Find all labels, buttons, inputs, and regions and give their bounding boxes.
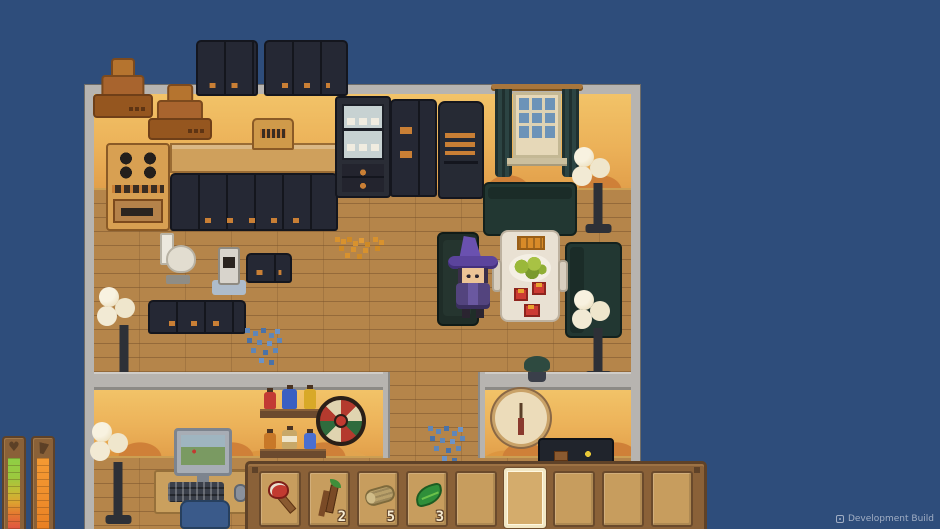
- counter-radio[interactable]: [252, 118, 294, 150]
- log-icon: [363, 483, 397, 508]
- hotbar-slot[interactable]: [259, 471, 301, 527]
- hotbar-slots: 2 5 3: [259, 471, 693, 529]
- wall-top-band: [94, 372, 390, 390]
- potion-orange: [264, 433, 276, 449]
- energy-track: [37, 458, 49, 529]
- dev-build-label: Development Build: [848, 514, 934, 524]
- potion-blue: [282, 389, 297, 409]
- hutch-base: [93, 94, 153, 118]
- coffee-body: [218, 247, 240, 285]
- stove-panel: [112, 185, 164, 193]
- floor-scribble-orange: [335, 237, 340, 242]
- hotbar-slot[interactable]: [602, 471, 644, 527]
- dish-display-cabinet[interactable]: [335, 96, 391, 198]
- wall-top-band: [478, 372, 631, 390]
- dartboard[interactable]: [316, 396, 366, 446]
- hotbar-slot[interactable]: 3: [406, 471, 448, 527]
- lamp-blooms: [574, 147, 594, 167]
- floor-scribble-blue: [245, 328, 250, 333]
- lamp-post: [594, 328, 603, 378]
- health-bar: ♥: [2, 436, 26, 529]
- keyboard: [168, 482, 224, 502]
- window: [495, 84, 579, 188]
- toilet[interactable]: [156, 233, 198, 287]
- potion-red: [264, 392, 276, 409]
- lamp-blooms: [99, 287, 119, 307]
- lamp-post: [594, 183, 603, 231]
- floor-scribble-blue: [428, 426, 433, 431]
- stat-bars: ♥: [2, 436, 58, 529]
- leaf-icon: [413, 482, 445, 508]
- dev-build-watermark: Development Build: [836, 514, 934, 524]
- wall-clock: [495, 392, 547, 444]
- gift-box: [524, 304, 540, 317]
- character-face: [458, 268, 488, 283]
- hotbar: 2 5 3: [245, 461, 707, 529]
- wooden-hutch: [93, 58, 153, 118]
- energy-bar: [31, 436, 55, 529]
- game-screen: ♥ 2 5: [0, 0, 940, 529]
- info-icon: [836, 515, 844, 523]
- lamp-blooms: [92, 422, 112, 442]
- couch-horizontal[interactable]: [483, 182, 577, 236]
- desk-chair[interactable]: [180, 500, 230, 529]
- potion-blue-small: [304, 433, 316, 449]
- fruit-plate: [509, 254, 551, 282]
- monitor-screen: [181, 435, 225, 465]
- hotbar-slot[interactable]: [504, 468, 546, 528]
- tall-cabinet[interactable]: [390, 99, 437, 197]
- computer-monitor[interactable]: [174, 428, 232, 476]
- drink-glyph: [37, 442, 49, 455]
- plant-leaves: [524, 356, 550, 372]
- orange-crate: [517, 236, 545, 250]
- potion-tan: [282, 430, 297, 449]
- upper-cabinet[interactable]: [196, 40, 258, 96]
- hotbar-slot[interactable]: 5: [357, 471, 399, 527]
- cabinet-drawers: [342, 164, 384, 192]
- hutch-base: [148, 118, 212, 140]
- character-legs: [462, 309, 484, 318]
- drawer-unit-small[interactable]: [246, 253, 292, 283]
- fridge[interactable]: [438, 101, 484, 199]
- health-track: [8, 458, 20, 529]
- stove-burners: [114, 150, 162, 180]
- lamp-blooms: [574, 290, 594, 310]
- hotbar-slot[interactable]: [553, 471, 595, 527]
- wall-plant[interactable]: [522, 356, 552, 382]
- drink-icon: [33, 439, 53, 457]
- hotbar-slot[interactable]: [651, 471, 693, 527]
- upper-cabinet[interactable]: [264, 40, 348, 96]
- item-count: 5: [387, 509, 395, 525]
- window-panes: [519, 98, 555, 138]
- heart-icon: ♥: [4, 439, 24, 457]
- flower-lamp[interactable]: [572, 288, 624, 384]
- dining-table[interactable]: [500, 230, 560, 322]
- item-count: 3: [436, 509, 444, 525]
- glass-door: [342, 104, 384, 160]
- lamp-post: [114, 462, 123, 522]
- hotbar-slot[interactable]: 2: [308, 471, 350, 527]
- hotbar-slot[interactable]: [455, 471, 497, 527]
- shelf-board: [260, 449, 326, 458]
- energy-fill: [37, 458, 49, 529]
- item-count: 2: [338, 509, 346, 525]
- player-character[interactable]: [446, 236, 500, 320]
- oven-door: [113, 199, 163, 223]
- flower-lamp[interactable]: [88, 418, 148, 529]
- axe-icon: [267, 481, 297, 513]
- health-fill: [8, 458, 20, 529]
- gift-box: [514, 288, 528, 301]
- gift-box: [532, 282, 546, 295]
- flower-lamp[interactable]: [572, 145, 624, 237]
- toilet-bowl: [166, 245, 196, 273]
- potion-yellow: [304, 389, 316, 409]
- lower-cabinets[interactable]: [170, 173, 338, 231]
- coffee-maker[interactable]: [212, 245, 246, 295]
- toilet-base: [166, 275, 190, 284]
- table-chair-right: [558, 260, 568, 292]
- character-body: [456, 283, 490, 309]
- stove[interactable]: [106, 143, 170, 231]
- window-sill: [507, 158, 567, 166]
- plant-pot: [528, 372, 546, 382]
- drawer-unit[interactable]: [148, 300, 246, 334]
- window-frame: [513, 92, 561, 158]
